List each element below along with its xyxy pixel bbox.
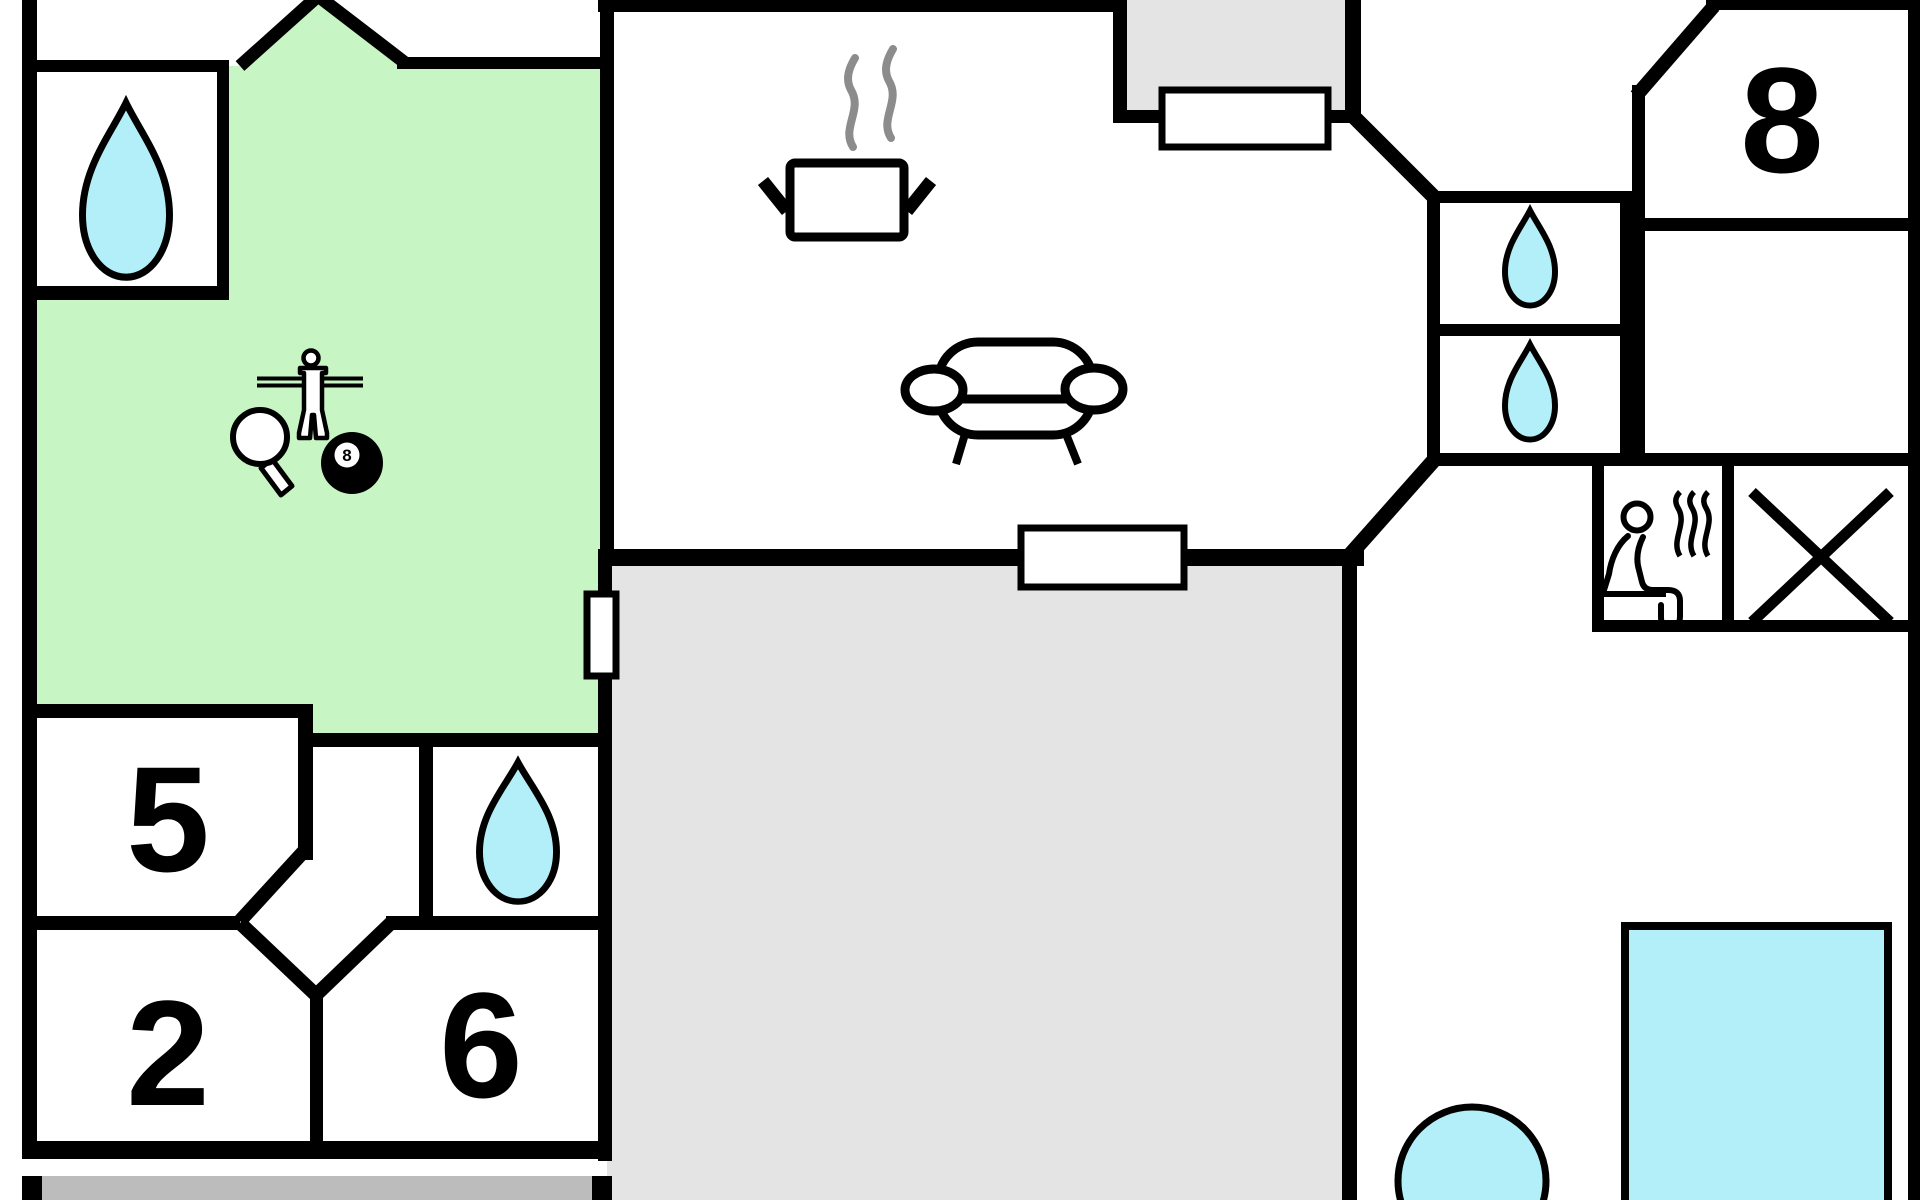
room-8-label: 8 bbox=[1740, 36, 1823, 204]
wall-segment bbox=[1345, 0, 1361, 123]
wall-segment bbox=[22, 60, 229, 72]
wall-segment bbox=[22, 916, 240, 930]
floor-plan: 8 5 2 6 8 bbox=[0, 0, 1920, 1200]
wall-segment bbox=[1633, 218, 1920, 231]
wall-segment bbox=[1433, 324, 1633, 336]
wall-segment bbox=[598, 0, 1127, 12]
wall-segment bbox=[1706, 0, 1920, 10]
terrace-post bbox=[592, 1176, 612, 1200]
wall-segment bbox=[1342, 549, 1357, 1200]
wall-segment bbox=[1722, 453, 1734, 632]
wall-segment bbox=[22, 704, 313, 718]
door bbox=[587, 594, 616, 676]
wall-segment bbox=[1908, 0, 1920, 1200]
wall-segment bbox=[1427, 191, 1440, 466]
wall-segment bbox=[419, 740, 433, 921]
terrace-strip bbox=[29, 1176, 605, 1200]
wall-segment bbox=[386, 916, 602, 930]
wall-segment bbox=[1427, 191, 1640, 203]
wall-segment bbox=[1113, 0, 1127, 123]
wall-segment bbox=[1620, 191, 1633, 466]
wall-segment bbox=[1592, 453, 1604, 632]
room-5-label: 5 bbox=[126, 735, 209, 903]
room-6-label: 6 bbox=[439, 961, 522, 1129]
wall-segment bbox=[22, 286, 229, 300]
wall-segment bbox=[217, 60, 229, 300]
billiard-ball-number: 8 bbox=[342, 446, 351, 465]
pool bbox=[1625, 926, 1888, 1200]
wall-segment bbox=[305, 733, 602, 747]
wall-segment bbox=[600, 0, 614, 566]
wall-segment bbox=[1427, 453, 1920, 466]
wall-segment bbox=[397, 57, 614, 69]
room-2-label: 2 bbox=[126, 969, 209, 1137]
door bbox=[1162, 90, 1328, 147]
terrace-post bbox=[22, 1176, 42, 1200]
conservatory-floor bbox=[607, 560, 1350, 1200]
door bbox=[1021, 528, 1184, 587]
wall-segment bbox=[310, 993, 323, 1159]
wall-segment bbox=[600, 549, 1028, 566]
wall-segment bbox=[22, 0, 37, 1159]
wall-segment bbox=[1177, 549, 1364, 566]
floor-plan-page: 8 5 2 6 8 bbox=[0, 0, 1920, 1200]
billiard-ball-icon: 8 bbox=[321, 432, 383, 494]
wall-segment bbox=[1632, 85, 1645, 466]
wall-segment bbox=[22, 1141, 612, 1159]
